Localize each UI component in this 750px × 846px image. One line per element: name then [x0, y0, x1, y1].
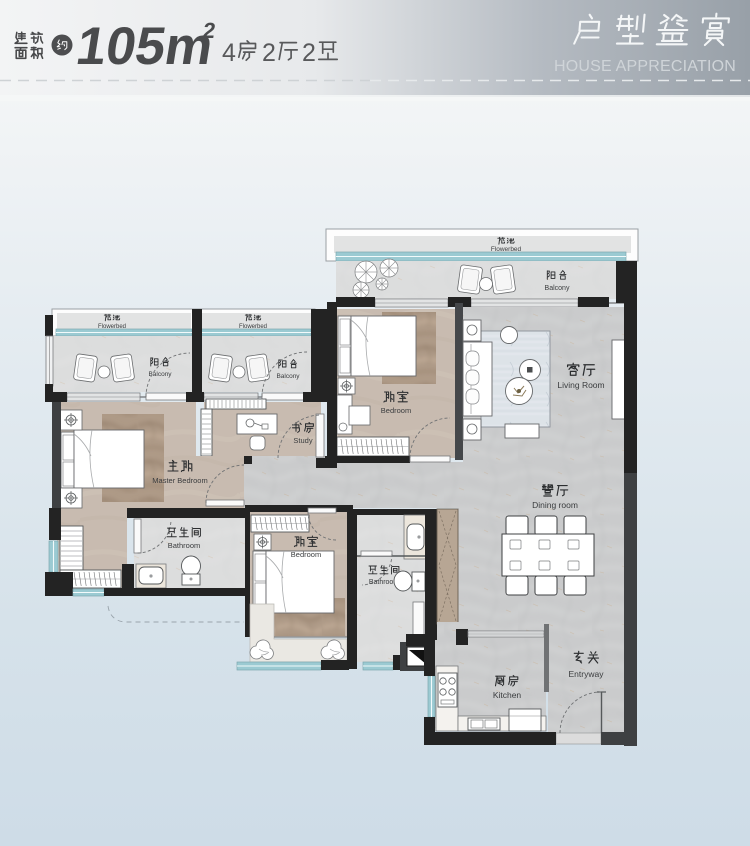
svg-text:4: 4: [222, 39, 236, 67]
svg-text:Kitchen: Kitchen: [493, 690, 522, 700]
svg-text:Bathroom: Bathroom: [168, 541, 201, 550]
svg-text:105m: 105m: [72, 17, 217, 76]
svg-text:Entryway: Entryway: [569, 669, 605, 679]
svg-text:HOUSE APPRECIATION: HOUSE APPRECIATION: [554, 58, 736, 75]
svg-text:2: 2: [262, 39, 276, 67]
svg-text:Study: Study: [293, 436, 312, 445]
svg-text:Balcony: Balcony: [545, 285, 570, 292]
svg-text:Bedroom: Bedroom: [291, 550, 321, 559]
svg-text:2: 2: [302, 39, 316, 67]
svg-text:Dining room: Dining room: [532, 500, 578, 510]
svg-text:Master Bedroom: Master Bedroom: [152, 476, 207, 485]
svg-text:Balcony: Balcony: [276, 373, 300, 380]
svg-text:Living Room: Living Room: [557, 380, 604, 390]
svg-text:Bedroom: Bedroom: [381, 406, 411, 415]
